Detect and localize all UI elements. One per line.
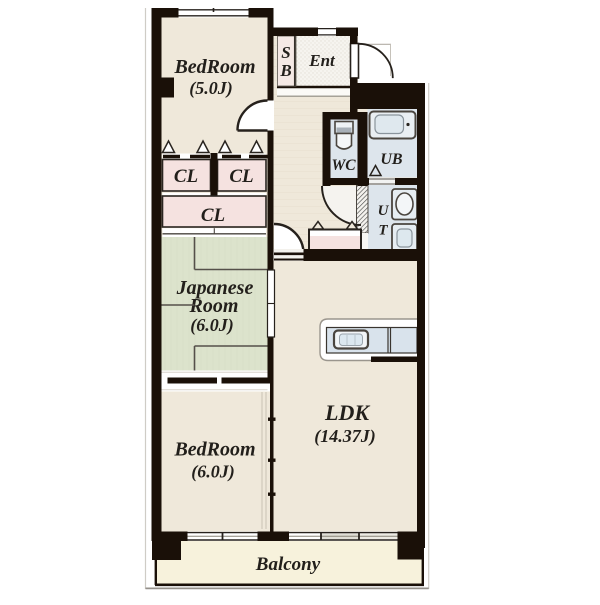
- svg-text:BedRoom: BedRoom: [173, 439, 255, 461]
- svg-text:U: U: [378, 203, 390, 219]
- svg-text:BedRoom: BedRoom: [173, 56, 255, 78]
- svg-text:(5.0J): (5.0J): [189, 78, 233, 99]
- svg-text:(6.0J): (6.0J): [190, 315, 234, 336]
- svg-text:S: S: [281, 43, 290, 62]
- svg-text:B: B: [279, 61, 291, 80]
- svg-text:CL: CL: [201, 205, 225, 226]
- svg-text:UB: UB: [380, 151, 403, 168]
- svg-text:LDK: LDK: [324, 400, 370, 425]
- svg-text:(14.37J): (14.37J): [314, 426, 376, 447]
- svg-text:(6.0J): (6.0J): [191, 462, 235, 483]
- svg-text:T: T: [378, 223, 388, 239]
- svg-text:WC: WC: [331, 157, 356, 174]
- svg-text:Balcony: Balcony: [255, 554, 321, 575]
- svg-text:CL: CL: [174, 166, 198, 187]
- svg-text:Room: Room: [189, 295, 239, 317]
- svg-text:CL: CL: [229, 166, 253, 187]
- svg-text:Ent: Ent: [308, 51, 336, 70]
